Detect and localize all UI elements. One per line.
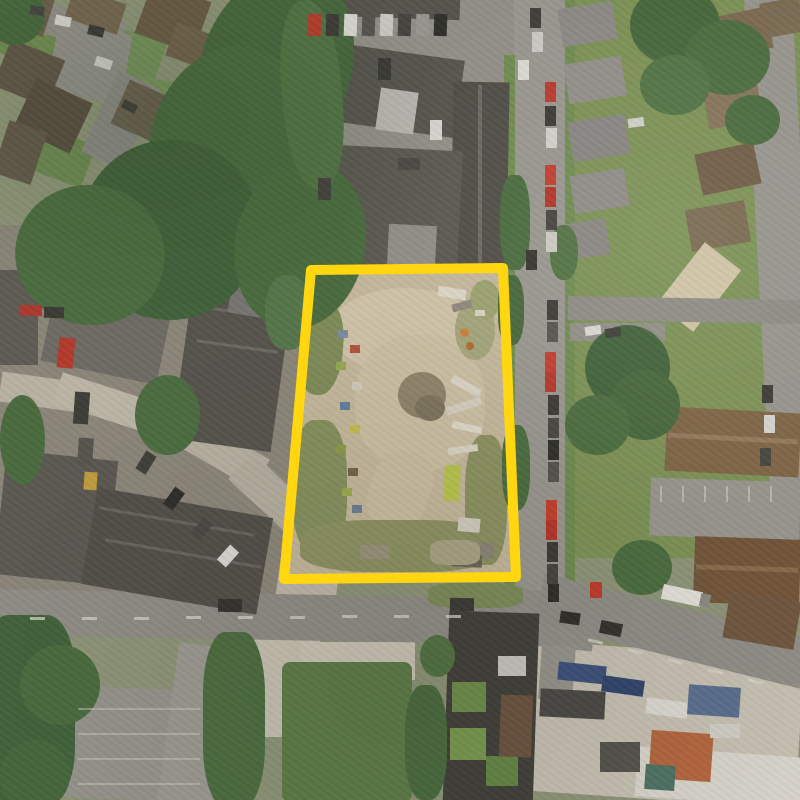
- road-marking: [394, 615, 409, 618]
- car: [380, 14, 394, 36]
- lorry-cab: [699, 593, 711, 608]
- rubble-pile: [430, 540, 480, 565]
- car: [546, 232, 557, 252]
- car: [547, 322, 558, 342]
- digger: [83, 472, 97, 491]
- parking-bay-line: [78, 733, 200, 735]
- car: [547, 564, 558, 584]
- truck: [20, 305, 42, 317]
- car: [545, 372, 556, 392]
- tree-line: [405, 685, 447, 800]
- car: [548, 395, 559, 415]
- debris: [352, 505, 362, 513]
- tree-line: [203, 632, 265, 800]
- shed-roof: [600, 742, 640, 772]
- debris: [340, 402, 350, 410]
- terrace-roof: [568, 296, 800, 324]
- tree-cluster: [640, 55, 710, 115]
- debris: [348, 468, 358, 476]
- roof-garden: [486, 756, 518, 786]
- tree-cluster: [0, 395, 45, 485]
- car: [559, 611, 580, 626]
- tree-line: [498, 275, 524, 345]
- car: [760, 448, 771, 466]
- car: [762, 385, 773, 403]
- debris: [460, 328, 469, 337]
- parking-bay-line: [78, 783, 200, 785]
- debris: [350, 425, 360, 433]
- car: [532, 32, 543, 52]
- parking-bay-line: [78, 758, 200, 760]
- phone-box: [590, 582, 602, 598]
- tree-cluster: [20, 645, 100, 725]
- truck: [44, 307, 64, 319]
- car: [546, 128, 557, 148]
- satellite-map[interactable]: [0, 0, 800, 800]
- car: [326, 14, 340, 36]
- road-marking: [30, 617, 45, 620]
- car: [344, 14, 358, 36]
- road-marking: [238, 616, 253, 619]
- parking-bay-line: [704, 486, 706, 502]
- car: [450, 598, 474, 611]
- tree-cluster: [265, 275, 310, 350]
- car: [398, 14, 412, 36]
- screenshot-frame: [0, 0, 800, 800]
- debris: [338, 330, 348, 338]
- rubble-pile: [360, 545, 390, 559]
- road-marking: [342, 615, 357, 618]
- building-roof: [375, 88, 418, 135]
- site-machine: [443, 465, 461, 502]
- road-marking: [186, 616, 201, 619]
- building-roof: [387, 224, 437, 266]
- tree-cluster: [725, 95, 780, 145]
- car: [545, 82, 556, 102]
- debris: [457, 517, 480, 533]
- van: [518, 60, 529, 80]
- car: [318, 178, 331, 200]
- parking-lot-apartments: [649, 477, 800, 540]
- green-field: [282, 662, 412, 800]
- debris: [336, 362, 346, 370]
- rubble-pile: [415, 395, 445, 421]
- tree-cluster: [565, 395, 630, 455]
- car: [545, 187, 556, 207]
- car: [548, 418, 559, 438]
- debris: [350, 345, 360, 353]
- car: [308, 14, 322, 36]
- tree-line: [502, 425, 530, 510]
- car: [416, 14, 430, 36]
- parking-bay-line: [78, 708, 200, 710]
- car: [378, 58, 391, 80]
- car: [546, 500, 557, 520]
- debris: [336, 445, 346, 453]
- roof-garden: [450, 728, 486, 760]
- car: [764, 415, 775, 433]
- roof-section: [499, 694, 533, 757]
- car: [547, 542, 558, 562]
- car: [526, 250, 537, 270]
- parking-bay-line: [682, 486, 684, 502]
- roof-panel: [498, 656, 526, 676]
- container: [539, 688, 605, 719]
- debris: [342, 488, 352, 496]
- car: [548, 462, 559, 482]
- roof-ridge: [478, 85, 482, 263]
- tree-cluster: [420, 635, 455, 677]
- car: [548, 440, 559, 460]
- truck: [56, 337, 75, 369]
- tree-cluster: [135, 375, 200, 455]
- car: [546, 210, 557, 230]
- road-marking: [134, 617, 149, 620]
- road-marking: [82, 617, 97, 620]
- house-roof: [0, 120, 48, 185]
- car: [398, 158, 420, 170]
- car: [218, 599, 242, 612]
- pallet-stack: [710, 724, 740, 738]
- truck: [77, 438, 94, 467]
- debris: [466, 342, 474, 350]
- car: [362, 14, 376, 36]
- car: [545, 352, 556, 372]
- pallet-stack: [687, 684, 741, 718]
- car: [548, 584, 559, 602]
- car: [545, 106, 556, 126]
- debris: [352, 382, 362, 390]
- debris: [475, 310, 485, 316]
- truck: [73, 392, 90, 425]
- car: [430, 120, 442, 140]
- parking-bay-line: [770, 486, 772, 502]
- car: [547, 300, 558, 320]
- road-marking: [290, 616, 305, 619]
- parking-bay-line: [660, 486, 662, 502]
- parking-bay-line: [726, 486, 728, 502]
- car: [530, 8, 541, 28]
- car: [434, 14, 448, 36]
- car: [545, 165, 556, 185]
- car: [546, 520, 557, 540]
- roof-garden: [452, 682, 486, 712]
- road-marking: [446, 615, 461, 618]
- parking-bay-line: [748, 486, 750, 502]
- building-roof: [644, 764, 676, 791]
- grass-strip: [428, 583, 523, 608]
